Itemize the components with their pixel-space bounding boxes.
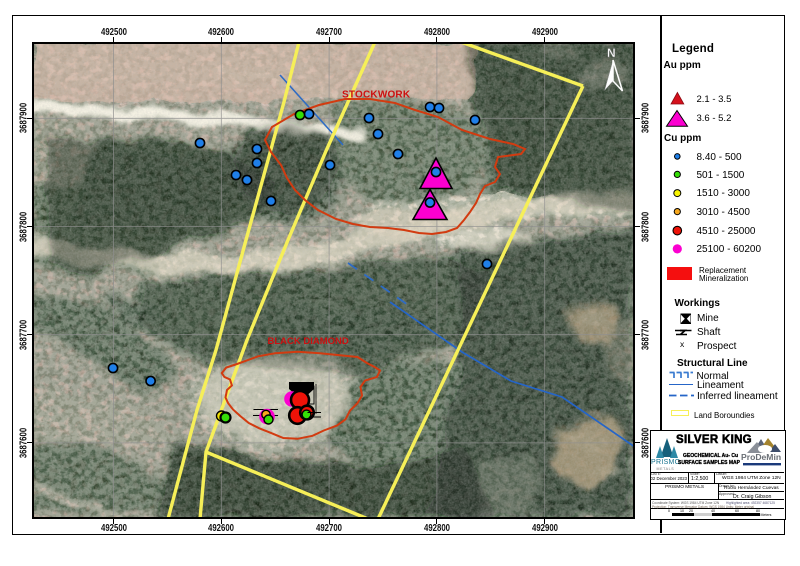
svg-text:BLACK DIAMOND: BLACK DIAMOND bbox=[268, 336, 349, 347]
svg-text:STOCKWORK: STOCKWORK bbox=[342, 90, 411, 101]
svg-text:ProDeMin: ProDeMin bbox=[741, 452, 781, 462]
svg-text:N: N bbox=[607, 46, 616, 60]
